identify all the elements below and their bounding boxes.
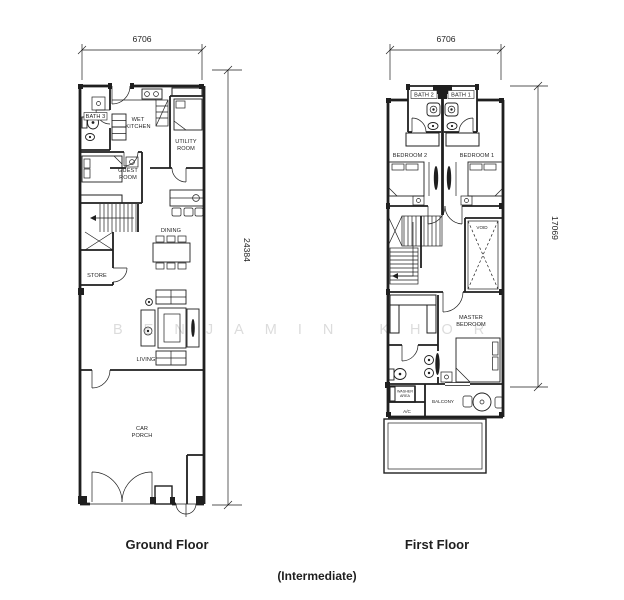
ff-balcony-table-icon bbox=[463, 393, 503, 411]
room-label-guest: ROOM bbox=[119, 175, 137, 181]
room-label-living: LIVING bbox=[137, 357, 156, 363]
shower-icon bbox=[92, 97, 105, 110]
gf-dimension-width: 6706 bbox=[78, 34, 206, 80]
room-label-wet-kitchen: WET bbox=[132, 117, 145, 123]
ff-dimension-width: 6706 bbox=[386, 34, 505, 80]
room-label-guest: GUEST bbox=[118, 168, 138, 174]
first-floor-plan: BATH 2 BATH 1 BEDROOM 2 BEDROOM 1 VOID M… bbox=[384, 34, 560, 473]
room-label-washer: AREA bbox=[400, 394, 411, 398]
room-label-bath3: BATH 3 bbox=[86, 114, 106, 120]
kitchen-sink-icon bbox=[142, 89, 162, 99]
gf-dimension-depth: 24384 bbox=[212, 66, 252, 509]
ff-staircase-icon bbox=[388, 216, 442, 284]
room-label-washer: WASHER bbox=[397, 390, 413, 394]
room-label-bedroom2: BEDROOM 2 bbox=[393, 153, 427, 159]
floor-plan-svg: BENJAMIN KHOR bbox=[0, 0, 624, 600]
gf-guest-wardrobe-hatch bbox=[80, 195, 122, 203]
ff-bedroom2-bed-icon bbox=[389, 162, 424, 205]
room-label-store: STORE bbox=[87, 273, 107, 279]
room-label-master-bedroom: BEDROOM bbox=[456, 322, 486, 328]
room-label-void: VOID bbox=[476, 225, 488, 230]
ff-columns bbox=[385, 84, 504, 417]
gf-side-gate-icon bbox=[155, 486, 172, 504]
watermark-text: BENJAMIN KHOR bbox=[113, 322, 505, 338]
gf-porch-gate-icon bbox=[92, 472, 196, 517]
room-label-wet-kitchen: KITCHEN bbox=[125, 124, 150, 130]
gf-utility-shelf-hatch bbox=[172, 88, 202, 96]
dimension-value: 6706 bbox=[132, 34, 151, 44]
wardrobe-door-icon bbox=[447, 166, 451, 190]
room-label-car-porch: CAR bbox=[136, 426, 148, 432]
room-label-ac: A/C bbox=[403, 409, 411, 414]
ff-wardrobe-hatch bbox=[446, 133, 479, 146]
gf-staircase-icon bbox=[85, 204, 136, 250]
gf-kitchen-counter-icon bbox=[112, 89, 162, 140]
room-label-bedroom1: BEDROOM 1 bbox=[460, 153, 494, 159]
first-floor-title: First Floor bbox=[405, 537, 469, 552]
room-label-master-bedroom: MASTER bbox=[459, 315, 483, 321]
dimension-value: 24384 bbox=[242, 238, 252, 262]
stool-icon bbox=[195, 208, 203, 216]
room-label-utility: UTILITY bbox=[175, 139, 197, 145]
gf-dry-counter-icon bbox=[170, 190, 204, 216]
gf-dining-table-icon bbox=[153, 236, 190, 269]
ground-floor-plan: BATH 3 WET KITCHEN UTILITY ROOM GUEST RO… bbox=[78, 34, 252, 517]
room-label-dining: DINING bbox=[161, 228, 181, 234]
stool-icon bbox=[172, 208, 181, 216]
gf-door-arcs bbox=[92, 86, 186, 388]
room-label-car-porch: PORCH bbox=[132, 433, 153, 439]
chair-icon bbox=[463, 396, 472, 407]
wardrobe-door-icon bbox=[434, 166, 438, 190]
room-label-bath1: BATH 1 bbox=[451, 93, 471, 99]
ff-dimension-depth: 17069 bbox=[510, 82, 560, 391]
ff-flat-roof bbox=[384, 419, 486, 473]
pocket-door-icon bbox=[435, 353, 439, 375]
ff-master-bath-fixtures bbox=[389, 356, 434, 381]
room-label-balcony: BALCONY bbox=[432, 399, 454, 404]
ff-wardrobe-hatch bbox=[406, 133, 439, 146]
unit-type-caption: (Intermediate) bbox=[277, 569, 356, 583]
ff-master-bed-icon bbox=[441, 338, 500, 382]
room-label-utility: ROOM bbox=[177, 146, 195, 152]
floorplan-page: BENJAMIN KHOR bbox=[0, 0, 624, 600]
stool-icon bbox=[184, 208, 193, 216]
ff-void-area bbox=[468, 221, 498, 289]
tv-icon bbox=[191, 319, 195, 337]
dimension-value: 6706 bbox=[436, 34, 455, 44]
ff-bedroom1-bed-icon bbox=[461, 162, 503, 205]
ff-master-wardrobe-hatch bbox=[390, 295, 436, 305]
gf-utility-bed-icon bbox=[174, 99, 202, 130]
bedside-table-icon bbox=[461, 196, 472, 205]
gf-kitchen-steps-icon bbox=[156, 100, 168, 126]
toilet-icon bbox=[389, 369, 394, 380]
bedside-table-icon bbox=[413, 196, 424, 205]
ground-floor-title: Ground Floor bbox=[125, 537, 208, 552]
dimension-value: 17069 bbox=[550, 216, 560, 240]
void-cross-icon bbox=[468, 221, 498, 289]
room-label-bath2: BATH 2 bbox=[414, 93, 434, 99]
bedside-table-icon bbox=[441, 372, 452, 382]
